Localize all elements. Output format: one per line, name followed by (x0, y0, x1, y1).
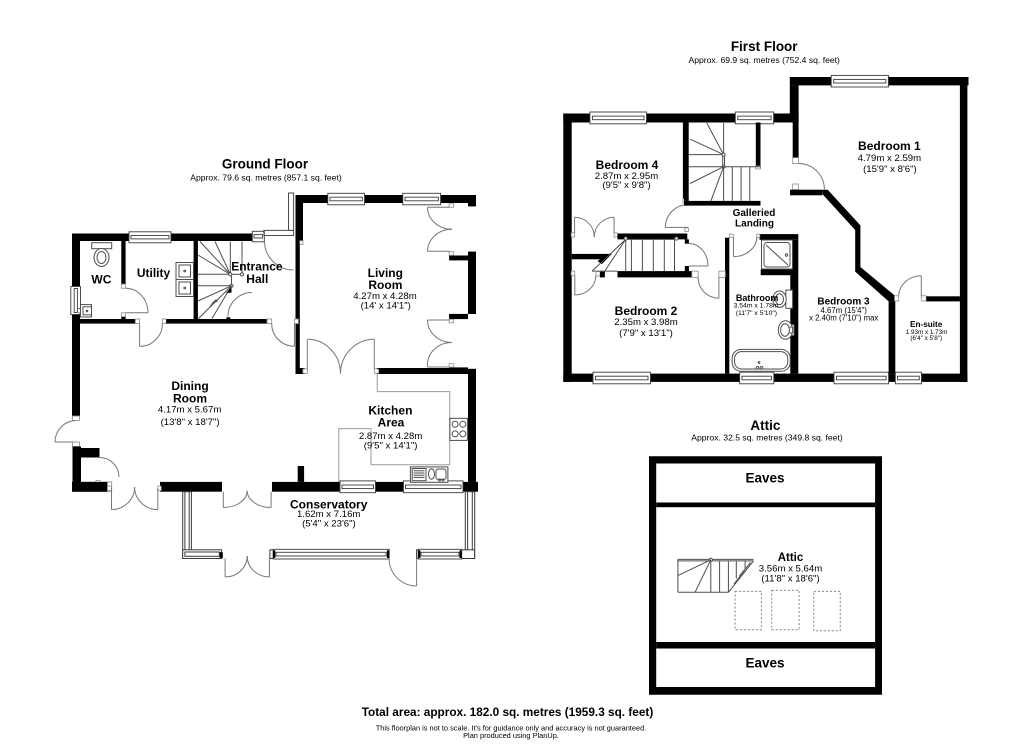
svg-text:4.17m x 5.67m: 4.17m x 5.67m (158, 404, 221, 415)
svg-text:Approx. 69.9 sq. metres (752.4: Approx. 69.9 sq. metres (752.4 sq. feet) (688, 55, 840, 65)
svg-text:Area: Area (378, 416, 405, 430)
svg-text:Approx. 79.6 sq. metres (857.1: Approx. 79.6 sq. metres (857.1 sq. feet) (190, 173, 342, 183)
svg-text:(11'8" x 18'6"): (11'8" x 18'6") (761, 573, 819, 584)
svg-text:(6'4" x 5'8"): (6'4" x 5'8") (910, 335, 942, 342)
svg-text:(13'8" x 18'7"): (13'8" x 18'7") (161, 417, 220, 428)
svg-text:Approx. 32.5 sq. metres (349.8: Approx. 32.5 sq. metres (349.8 sq. feet) (691, 433, 843, 443)
svg-text:2.35m x 3.98m: 2.35m x 3.98m (614, 317, 677, 328)
svg-text:Attic: Attic (750, 418, 780, 433)
svg-text:(9'5" x 14'1"): (9'5" x 14'1") (364, 441, 418, 452)
svg-text:Hall: Hall (246, 272, 268, 286)
svg-text:Ground Floor: Ground Floor (222, 157, 309, 172)
svg-text:x 2.40m (7'10") max: x 2.40m (7'10") max (809, 314, 878, 323)
svg-text:(11'7" x 5'10"): (11'7" x 5'10") (736, 310, 777, 317)
svg-text:WC: WC (91, 272, 111, 286)
svg-text:First Floor: First Floor (731, 39, 798, 54)
svg-text:(14' x 14'1"): (14' x 14'1") (361, 301, 411, 312)
svg-text:(7'9" x 13'1"): (7'9" x 13'1") (619, 328, 673, 339)
svg-text:(5'4" x 23'6"): (5'4" x 23'6") (302, 518, 356, 529)
svg-text:Landing: Landing (735, 218, 774, 229)
svg-text:Utility: Utility (137, 266, 171, 280)
svg-text:Attic: Attic (778, 552, 804, 564)
svg-text:Bedroom 2: Bedroom 2 (615, 304, 678, 318)
svg-text:Bedroom 1: Bedroom 1 (858, 139, 921, 153)
svg-text:(9'5" x 9'8"): (9'5" x 9'8") (602, 180, 650, 191)
svg-text:3.54m x 1.78m: 3.54m x 1.78m (734, 303, 779, 310)
svg-text:Total area: approx. 182.0 sq.: Total area: approx. 182.0 sq. metres (19… (362, 705, 654, 719)
svg-text:4.79m x 2.59m: 4.79m x 2.59m (858, 153, 921, 164)
svg-text:Eaves: Eaves (745, 471, 784, 486)
svg-text:Eaves: Eaves (745, 655, 784, 670)
svg-text:Plan produced using PlanUp.: Plan produced using PlanUp. (463, 731, 559, 740)
svg-text:Bathroom: Bathroom (736, 293, 779, 303)
svg-text:(15'9" x 8'6"): (15'9" x 8'6") (863, 164, 917, 175)
